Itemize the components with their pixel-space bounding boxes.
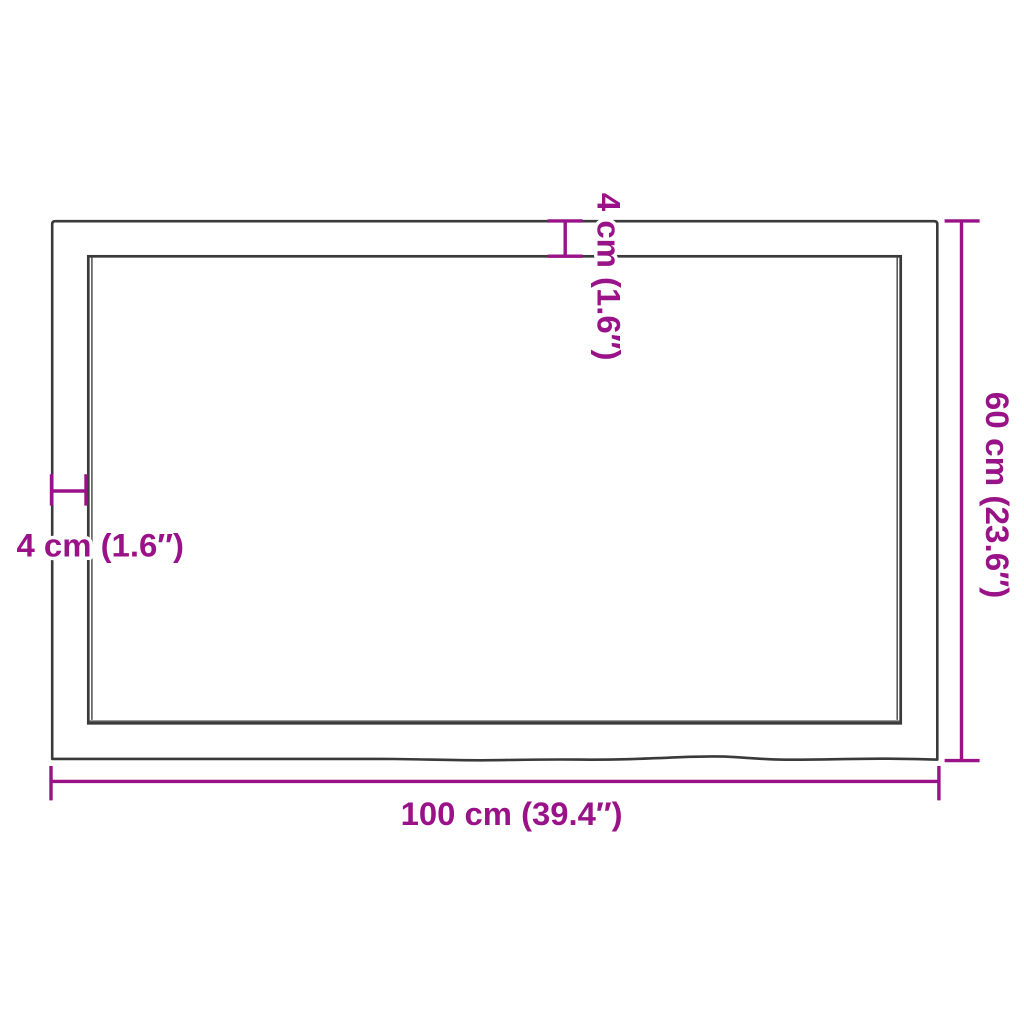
svg-text:4 cm (1.6″): 4 cm (1.6″) — [17, 527, 185, 564]
svg-text:100 cm (39.4″): 100 cm (39.4″) — [401, 795, 623, 832]
svg-text:60 cm (23.6″): 60 cm (23.6″) — [979, 392, 1016, 599]
svg-text:4 cm (1.6″): 4 cm (1.6″) — [591, 193, 628, 361]
